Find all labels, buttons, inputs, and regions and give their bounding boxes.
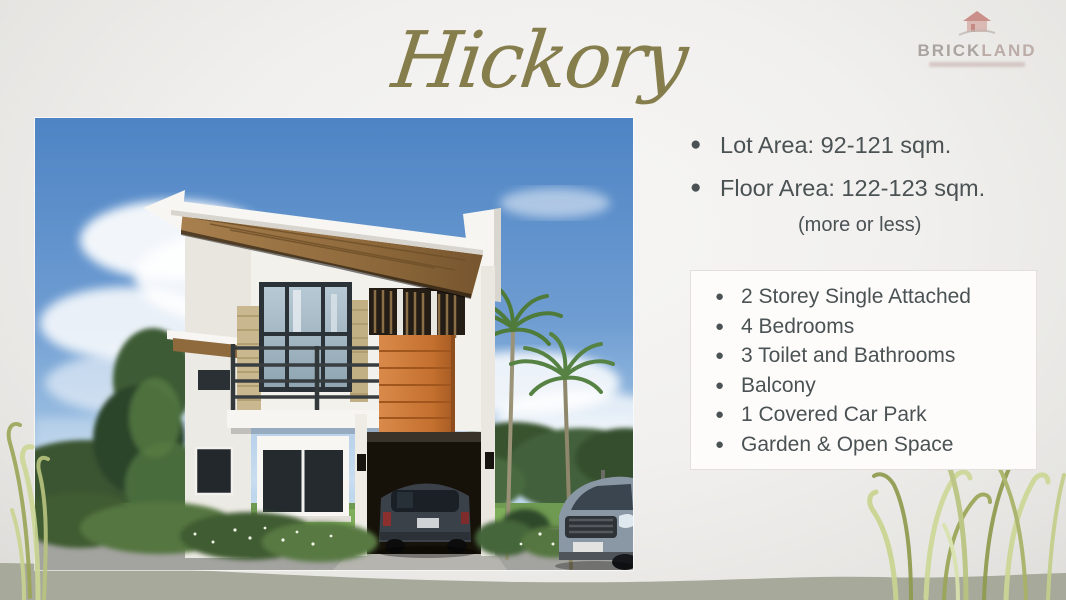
house-photo bbox=[35, 118, 633, 570]
brickland-house-icon bbox=[957, 8, 997, 38]
feature-item: ● Garden & Open Space bbox=[715, 430, 1028, 460]
logo-tagline-illegible bbox=[929, 62, 1025, 67]
feature-text: 4 Bedrooms bbox=[741, 312, 854, 342]
feature-text: Balcony bbox=[741, 371, 816, 401]
feature-text: Garden & Open Space bbox=[741, 430, 953, 460]
more-or-less-note: (more or less) bbox=[798, 214, 1062, 237]
feature-item: ● 2 Storey Single Attached bbox=[715, 282, 1028, 312]
feature-item: ● Balcony bbox=[715, 371, 1028, 401]
spec-lot-area: ● Lot Area: 92-121 sqm. bbox=[690, 130, 1062, 160]
features-box: ● 2 Storey Single Attached ● 4 Bedrooms … bbox=[690, 270, 1037, 470]
spec-lot-area-text: Lot Area: 92-121 sqm. bbox=[720, 130, 951, 160]
slat-vent bbox=[369, 288, 465, 338]
spec-floor-area: ● Floor Area: 122-123 sqm. bbox=[690, 173, 1062, 203]
feature-text: 2 Storey Single Attached bbox=[741, 282, 971, 312]
brand-part-land: LAND bbox=[981, 41, 1036, 60]
spec-floor-area-text: Floor Area: 122-123 sqm. bbox=[720, 173, 985, 203]
ground-window bbox=[255, 436, 351, 522]
feature-item: ● 1 Covered Car Park bbox=[715, 400, 1028, 430]
orange-panel bbox=[379, 335, 455, 432]
bullet-icon: ● bbox=[715, 371, 741, 401]
bullet-icon: ● bbox=[690, 173, 720, 203]
grass-left-decoration bbox=[0, 415, 52, 600]
feature-item: ● 3 Toilet and Bathrooms bbox=[715, 341, 1028, 371]
brand-part-brick: BRICK bbox=[917, 41, 981, 60]
bullet-icon: ● bbox=[715, 341, 741, 371]
brickland-logo: BRICKLAND bbox=[902, 8, 1052, 70]
garage-car bbox=[377, 483, 477, 558]
bullet-icon: ● bbox=[715, 430, 741, 460]
feature-text: 3 Toilet and Bathrooms bbox=[741, 341, 955, 371]
grass-right-decoration bbox=[866, 450, 1066, 600]
feature-item: ● 4 Bedrooms bbox=[715, 312, 1028, 342]
page-title: Hickory bbox=[360, 2, 716, 132]
balcony-window bbox=[259, 282, 352, 392]
bullet-icon: ● bbox=[715, 282, 741, 312]
area-specs: ● Lot Area: 92-121 sqm. ● Floor Area: 12… bbox=[690, 130, 1062, 237]
bullet-icon: ● bbox=[715, 400, 741, 430]
bullet-icon: ● bbox=[690, 130, 720, 160]
marketing-slide: BRICKLAND Hickory bbox=[0, 0, 1066, 600]
bullet-icon: ● bbox=[715, 312, 741, 342]
house bbox=[143, 190, 501, 558]
feature-text: 1 Covered Car Park bbox=[741, 400, 927, 430]
brickland-wordmark: BRICKLAND bbox=[902, 43, 1052, 59]
